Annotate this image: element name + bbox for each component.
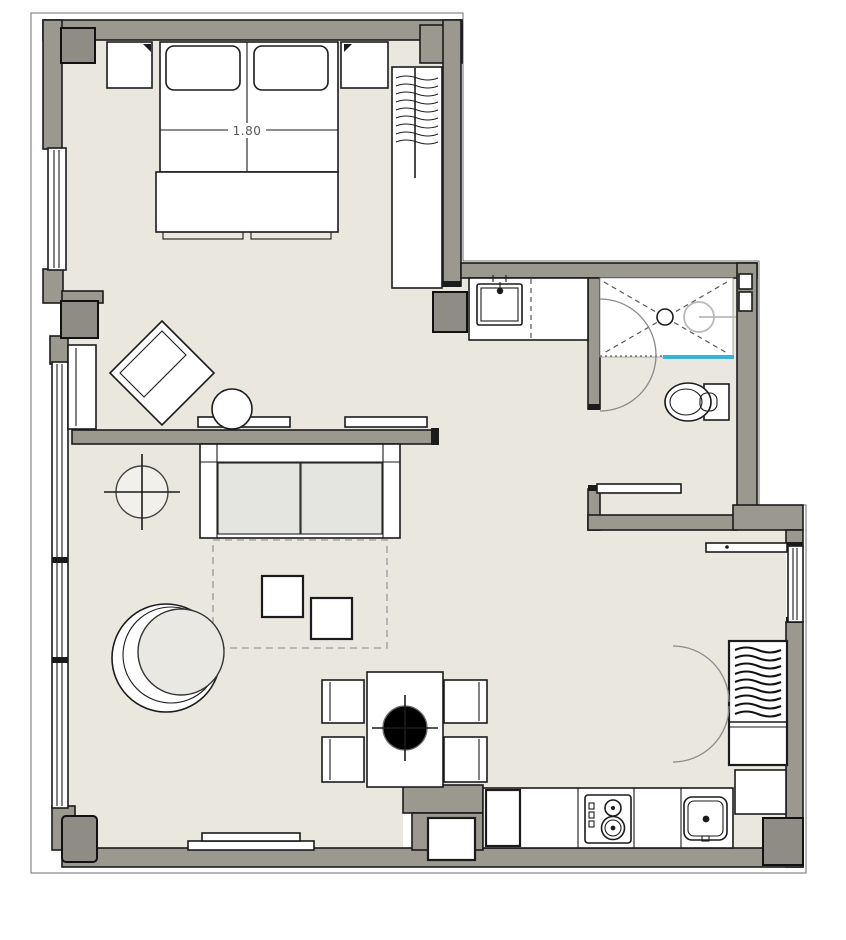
- wall-shower-stub: [588, 278, 600, 409]
- column-bottom-left: [62, 816, 97, 862]
- wall-partition: [72, 430, 438, 444]
- wall-top: [43, 20, 462, 40]
- bed-width-label: 1.80: [233, 124, 262, 138]
- cooktop-icon: [585, 795, 631, 843]
- dining-chair: [444, 680, 487, 723]
- wall-bath-south: [588, 515, 737, 530]
- towel-rail: [597, 484, 681, 493]
- console-shelf: [706, 543, 787, 552]
- dining-chair: [322, 737, 364, 782]
- wall-kitchen-step-top: [403, 785, 483, 813]
- radiator: [68, 345, 96, 429]
- column-hallway: [433, 292, 467, 332]
- sofa-cushion: [218, 463, 300, 534]
- pillow-left: [166, 46, 240, 90]
- shower-drain-icon: [657, 309, 673, 325]
- partition-shelf-right: [345, 417, 427, 427]
- kitchen-sink-icon: [684, 797, 727, 841]
- wall-bath-top: [461, 263, 757, 278]
- shower-stub-cap: [588, 404, 600, 410]
- column-kitchen-step: [428, 818, 475, 860]
- floor-plan: 1.80: [0, 0, 846, 940]
- floor-plan-drawing: 1.80: [0, 0, 846, 940]
- coffee-table: [311, 598, 352, 639]
- nightstand-right: [341, 42, 388, 88]
- sofa-cushion: [301, 463, 382, 534]
- entry-window: [788, 546, 803, 622]
- wall-left-upper: [43, 20, 62, 149]
- entry-alcove: [735, 770, 786, 814]
- bedroom-wall-cap: [443, 281, 461, 287]
- duct-niche: [739, 274, 752, 311]
- kitchen-appliance-unit: [486, 790, 520, 846]
- wall-left-mid: [43, 269, 63, 303]
- partition-end-cap: [431, 428, 439, 445]
- coffee-table: [262, 576, 303, 617]
- bedroom-wardrobe: [392, 67, 442, 288]
- pillow-right: [254, 46, 328, 90]
- bed-foot-bench: [156, 172, 338, 232]
- dining-chair: [444, 737, 487, 782]
- column-bottom-right: [763, 818, 803, 865]
- tv-panel: [202, 833, 300, 841]
- kitchen: [483, 788, 733, 848]
- bedroom-window: [48, 148, 66, 270]
- toilet-icon: [665, 383, 729, 421]
- round-side-table: [212, 389, 252, 429]
- wall-bedroom-right: [443, 20, 461, 286]
- nightstand-left: [107, 42, 152, 88]
- sofa: [200, 444, 400, 538]
- wall-left-small: [50, 336, 68, 364]
- column-left-mid: [61, 301, 98, 338]
- tv-console: [188, 841, 314, 850]
- dining-chair: [322, 680, 364, 723]
- wall-step-right: [733, 505, 803, 530]
- living-window: [52, 362, 68, 808]
- vanity: [469, 275, 588, 340]
- column-top-left: [61, 28, 95, 63]
